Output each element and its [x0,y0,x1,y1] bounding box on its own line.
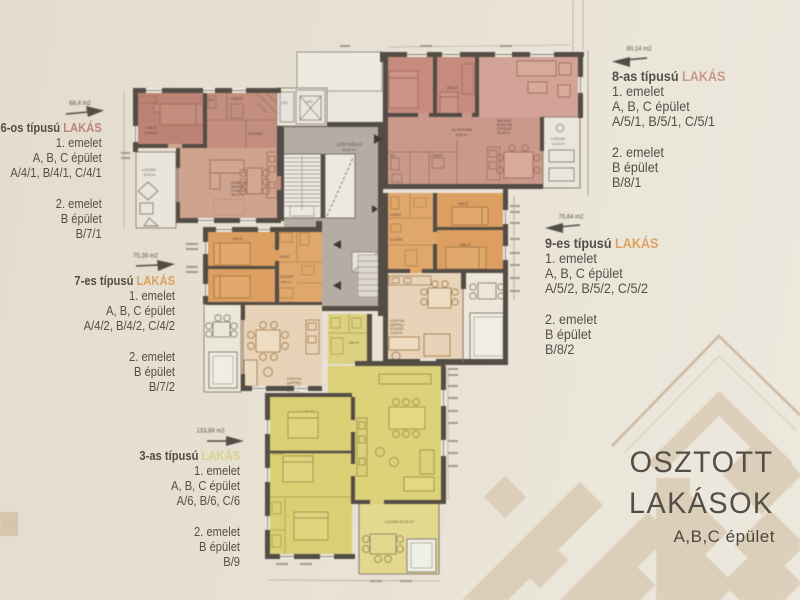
svg-text:KONYHA: KONYHA [287,377,302,381]
svg-text:KONYHA: KONYHA [497,123,513,127]
svg-text:36,85 m²: 36,85 m² [342,148,357,152]
svg-text:4,72 m²: 4,72 m² [272,452,283,456]
svg-text:HÁLÓ: HÁLÓ [146,125,157,130]
svg-text:5,96 m²: 5,96 m² [281,280,292,284]
svg-text:36,30 m²: 36,30 m² [497,131,511,135]
svg-text:ELŐTÉR: ELŐTÉR [390,237,403,242]
svg-text:8,50 m²: 8,50 m² [456,133,468,137]
svg-text:NAPPALI: NAPPALI [497,119,512,123]
svg-text:ELŐTÉR: ELŐTÉR [248,131,263,136]
svg-text:HÁLÓ: HÁLÓ [447,85,458,90]
svg-text:LOGGIA: LOGGIA [551,137,565,141]
svg-text:C33: C33 [281,101,287,105]
svg-text:HÁLÓ: HÁLÓ [458,201,468,206]
svg-text:LOGGIA 30,23 m²: LOGGIA 30,23 m² [385,520,415,524]
svg-text:38,79 m²: 38,79 m² [231,193,245,197]
svg-text:ÉTKEZŐ: ÉTKEZŐ [231,188,246,193]
svg-text:ELŐTÉR: ELŐTÉR [280,274,294,279]
svg-text:23,66 m²: 23,66 m² [390,331,403,335]
svg-text:68,4 m2: 68,4 m2 [69,101,91,107]
svg-text:NAPPALI: NAPPALI [287,381,301,385]
svg-text:ÉTKEZŐ: ÉTKEZŐ [390,326,404,331]
svg-text:NAPPALI: NAPPALI [390,323,404,327]
svg-text:75,28 m2: 75,28 m2 [133,254,159,260]
svg-text:KONYHA: KONYHA [390,319,405,323]
svg-text:LÉPCSŐHÁZ: LÉPCSŐHÁZ [337,142,363,147]
svg-text:HÁLÓ: HÁLÓ [460,242,470,247]
svg-text:15,43 m²: 15,43 m² [143,173,156,177]
svg-text:FÜRDŐ: FÜRDŐ [390,212,402,217]
svg-text:LOGGIA: LOGGIA [142,168,156,172]
svg-text:FÜRDŐ: FÜRDŐ [231,96,243,101]
svg-text:75,64 m2: 75,64 m2 [558,215,584,221]
svg-text:ÉTKEZŐ: ÉTKEZŐ [497,126,512,131]
svg-text:13,09 m²: 13,09 m² [144,131,158,135]
svg-text:7,84 m²: 7,84 m² [348,341,359,345]
svg-text:WC: WC [390,154,396,158]
svg-text:FÜRDŐ: FÜRDŐ [431,153,443,158]
svg-text:WC: WC [209,98,215,102]
svg-text:KONYHA: KONYHA [231,181,247,185]
svg-text:133,88 m2: 133,88 m2 [196,429,225,435]
svg-text:ELŐSZOBA: ELŐSZOBA [452,127,473,132]
svg-text:LIFT: LIFT [306,100,313,104]
svg-text:12,41 m²: 12,41 m² [552,142,565,146]
svg-text:90,14 m2: 90,14 m2 [626,47,652,53]
svg-text:HÁLÓ: HÁLÓ [232,236,242,241]
svg-text:FÜRDŐ: FÜRDŐ [278,254,290,259]
